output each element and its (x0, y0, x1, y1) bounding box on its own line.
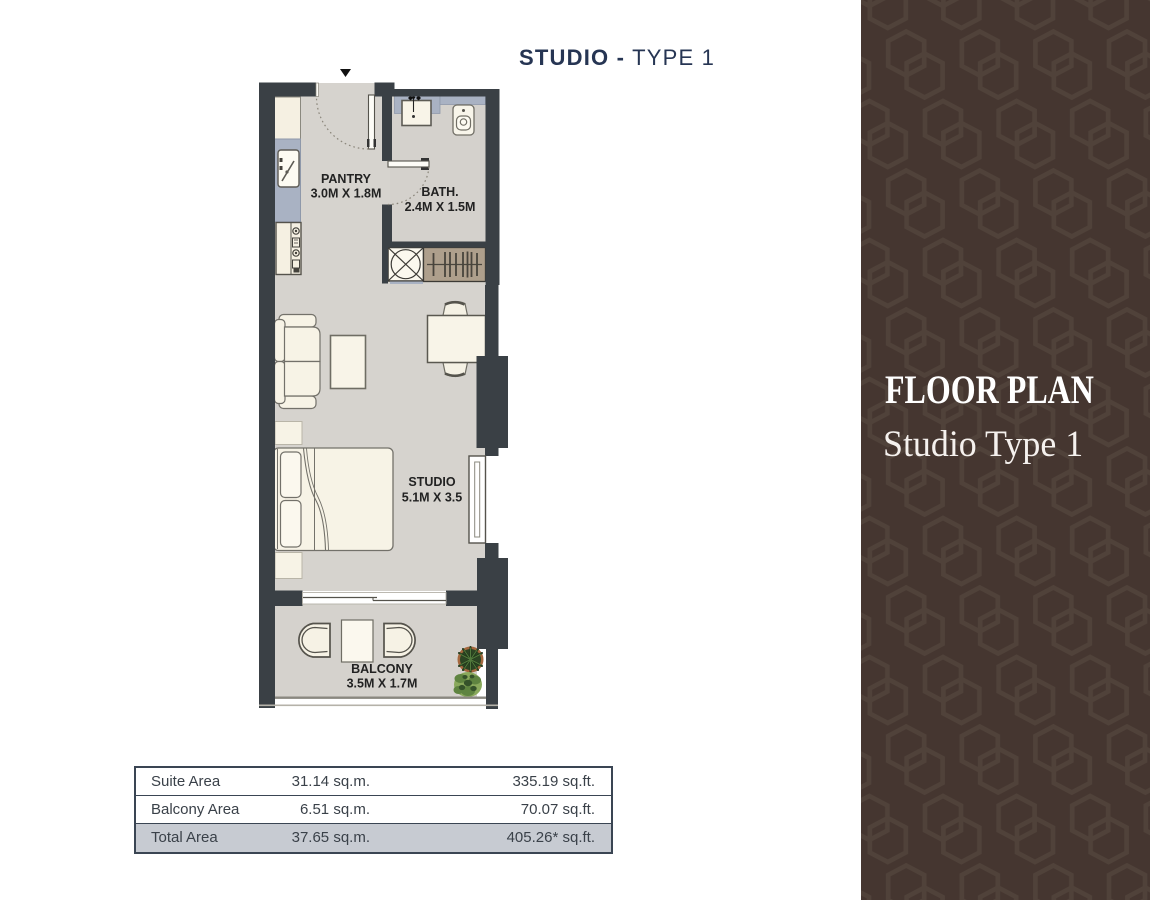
svg-text:BALCONY: BALCONY (351, 662, 413, 676)
svg-text:3.5M X 1.7M: 3.5M X 1.7M (347, 677, 418, 691)
svg-text:5.1M X 3.5: 5.1M X 3.5 (402, 491, 462, 505)
svg-text:3.0M X 1.8M: 3.0M X 1.8M (311, 187, 382, 201)
svg-text:STUDIO: STUDIO (408, 475, 456, 489)
svg-text:2.4M X 1.5M: 2.4M X 1.5M (405, 200, 476, 214)
svg-text:PANTRY: PANTRY (321, 172, 372, 186)
svg-text:BATH.: BATH. (421, 185, 458, 199)
